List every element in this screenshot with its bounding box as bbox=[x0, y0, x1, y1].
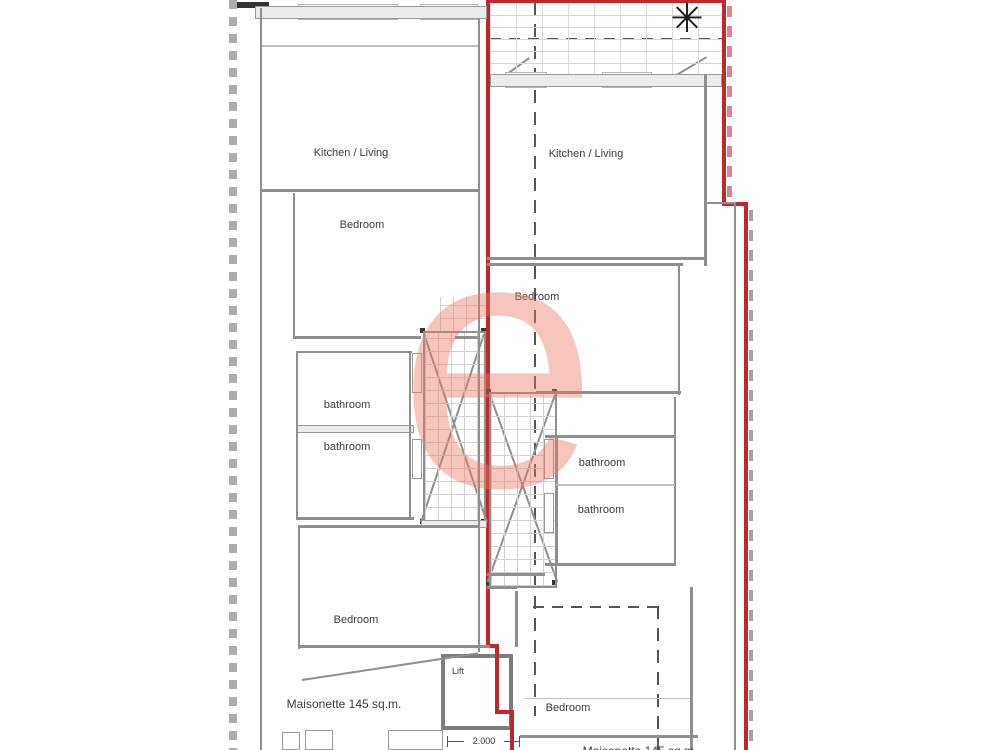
wall-segment bbox=[455, 336, 480, 339]
room-label-bedroom-bottom-left: Bedroom bbox=[334, 614, 379, 626]
site-boundary-dashed bbox=[229, 0, 237, 750]
fixture bbox=[388, 730, 443, 750]
boundary-red-segment bbox=[744, 202, 748, 750]
room-label-bathroom-lower-left: bathroom bbox=[324, 441, 370, 453]
door-leaf bbox=[544, 439, 554, 479]
wall-segment bbox=[556, 484, 675, 486]
party-wall-red-dashes bbox=[727, 6, 732, 200]
door-leaf bbox=[544, 493, 554, 533]
boundary-red-segment bbox=[722, 0, 726, 206]
wall-segment bbox=[298, 525, 300, 649]
door-leaf bbox=[412, 353, 422, 393]
wall-segment bbox=[704, 74, 707, 266]
wall-segment bbox=[536, 391, 681, 394]
wall-segment bbox=[478, 18, 480, 652]
wall-segment bbox=[293, 336, 421, 339]
wall-segment bbox=[296, 351, 412, 353]
wall-segment bbox=[678, 263, 680, 395]
lift-label: Lift bbox=[452, 666, 464, 676]
room-label-bedroom-bottom-right: Bedroom bbox=[546, 702, 591, 714]
wall-segment bbox=[487, 263, 683, 266]
wardrobe-dashed-line bbox=[657, 606, 659, 750]
wall-segment bbox=[515, 591, 518, 647]
fixture bbox=[282, 732, 300, 750]
dimension-label: 2.000 bbox=[473, 736, 496, 746]
room-label-bathroom-upper-left: bathroom bbox=[324, 399, 370, 411]
wall-band bbox=[255, 6, 487, 19]
area-label-right-partial: Maisonette 145 sq.m. bbox=[583, 744, 698, 750]
wall-segment bbox=[556, 435, 558, 565]
room-label-bathroom-lower-right: bathroom bbox=[578, 504, 624, 516]
wall-segment bbox=[298, 525, 480, 528]
area-label-left: Maisonette 145 sq.m. bbox=[287, 697, 402, 711]
wall-segment bbox=[487, 586, 517, 589]
section-line-dashed bbox=[534, 2, 536, 716]
wall-segment bbox=[409, 351, 411, 520]
wall-segment bbox=[525, 698, 691, 699]
wall-segment bbox=[296, 351, 298, 520]
party-wall-gray-dashes bbox=[749, 210, 753, 750]
wall-segment bbox=[293, 193, 295, 339]
wall-segment bbox=[734, 204, 736, 750]
dimension-line bbox=[448, 741, 464, 742]
wall-segment bbox=[545, 563, 676, 566]
wall-segment bbox=[520, 735, 698, 738]
room-label-kitchen-living-right: Kitchen / Living bbox=[549, 148, 624, 160]
wall-segment bbox=[262, 45, 478, 47]
boundary-red-segment bbox=[510, 710, 514, 750]
wall-segment bbox=[260, 8, 262, 750]
wall-segment bbox=[296, 517, 414, 520]
wall-band bbox=[490, 74, 722, 87]
room-label-bedroom-top-right: Bedroom bbox=[515, 291, 560, 303]
wall-segment bbox=[690, 587, 693, 750]
boundary-red-segment bbox=[495, 644, 499, 714]
shaft-hatch bbox=[423, 331, 486, 523]
wardrobe-dashed-line bbox=[533, 606, 661, 608]
door-leaf bbox=[412, 439, 422, 479]
room-label-bathroom-upper-right: bathroom bbox=[579, 457, 625, 469]
plant-icon: ✳ bbox=[670, 0, 704, 42]
wall-segment bbox=[262, 189, 480, 192]
wall-segment bbox=[674, 397, 676, 566]
wall-band bbox=[296, 425, 414, 433]
wall-segment bbox=[487, 257, 706, 260]
wall-segment bbox=[706, 202, 736, 204]
floor-plan-canvas: e ✳ Kitchen / Living Bedroom bathroom ba… bbox=[0, 0, 1000, 750]
wall-segment bbox=[298, 645, 490, 648]
wall-segment bbox=[487, 573, 545, 576]
room-label-kitchen-living-left: Kitchen / Living bbox=[314, 147, 389, 159]
room-label-bedroom-top-left: Bedroom bbox=[340, 219, 385, 231]
shaft-hatch bbox=[489, 392, 557, 588]
wall-segment bbox=[545, 435, 676, 438]
fixture bbox=[305, 730, 333, 750]
